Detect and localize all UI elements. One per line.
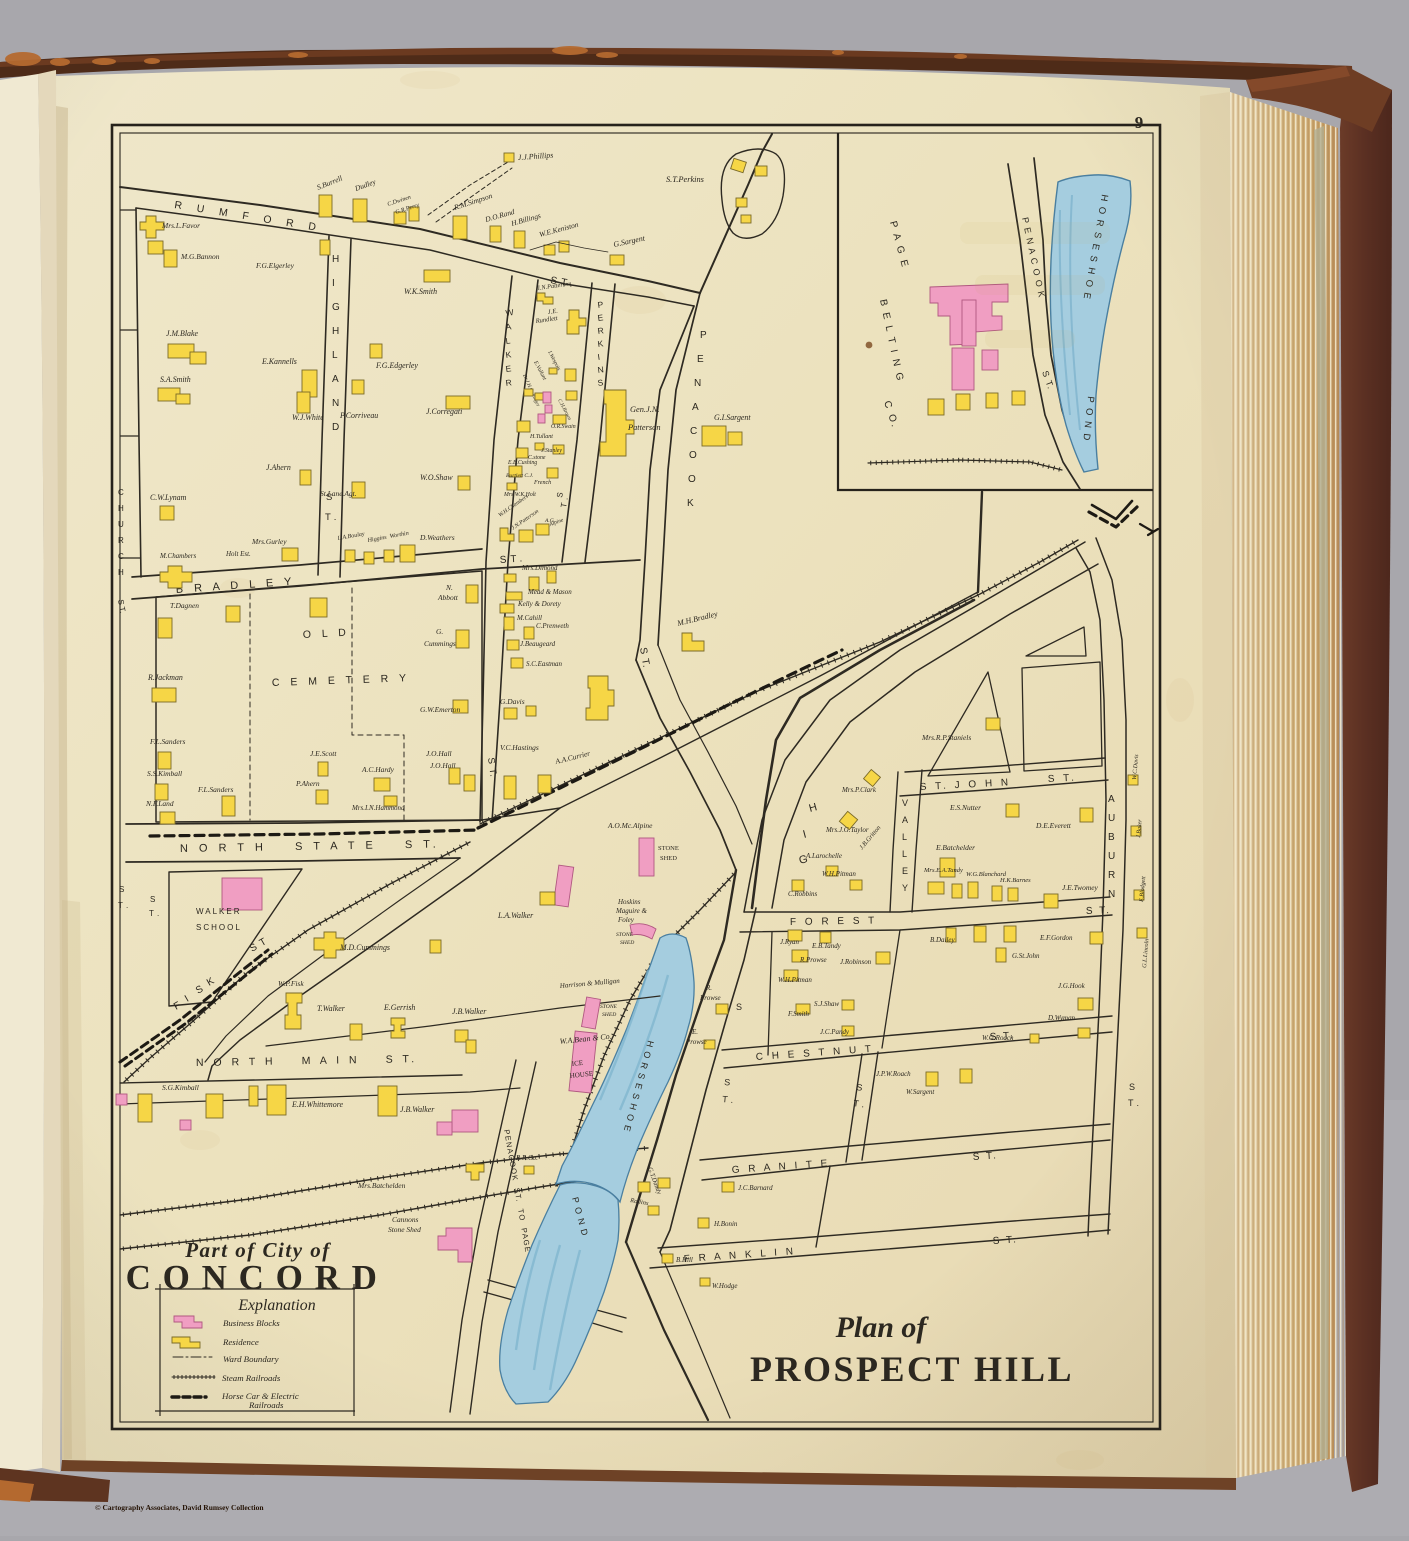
svg-text:H: H [118,504,128,513]
svg-text:M.G.Bannon: M.G.Bannon [180,252,220,261]
svg-text:W.G.Roach: W.G.Roach [982,1034,1014,1042]
svg-text:H: H [332,326,343,337]
svg-text:Y: Y [902,883,912,893]
svg-text:Explanation: Explanation [237,1297,315,1314]
svg-text:S.J.Shaw: S.J.Shaw [814,1000,840,1008]
svg-text:E.Gerrish: E.Gerrish [383,1003,415,1012]
svg-text:SCHOOL: SCHOOL [196,923,242,932]
svg-text:O L D: O L D [303,627,351,641]
svg-text:U: U [118,520,128,529]
svg-text:A: A [692,402,703,413]
svg-text:Mrs.I.N.Hammond: Mrs.I.N.Hammond [351,804,405,812]
svg-text:STONE: STONE [658,845,679,852]
svg-text:A.Larochelle: A.Larochelle [805,852,842,860]
svg-text:J.Stanley: J.Stanley [541,448,562,454]
svg-text:D.E.Everett: D.E.Everett [1035,821,1072,830]
svg-text:J.G.Hook: J.G.Hook [1058,982,1086,990]
svg-text:W.P.Fisk: W.P.Fisk [278,979,304,988]
svg-text:J.E.Scott: J.E.Scott [310,749,337,758]
svg-text:Mrs.P.Clark: Mrs.P.Clark [841,786,877,794]
svg-text:S T.: S T. [992,1234,1018,1247]
svg-text:G.I.Sargent: G.I.Sargent [714,413,751,422]
svg-text:C.W.Lynam: C.W.Lynam [150,493,187,502]
svg-text:N: N [694,378,705,389]
svg-text:A: A [505,321,516,332]
svg-text:F.G.Edgerley: F.G.Edgerley [375,361,418,370]
svg-text:Mrs.Gurley: Mrs.Gurley [251,537,287,546]
svg-text:E: E [902,866,912,876]
svg-text:A: A [332,374,343,385]
svg-text:E: E [597,312,608,323]
svg-text:P: P [700,330,711,341]
svg-text:J.O.Hall: J.O.Hall [426,749,452,758]
svg-text:W.Sargent: W.Sargent [906,1088,935,1096]
svg-text:G: G [332,302,344,313]
svg-text:E.S.Nutter: E.S.Nutter [949,803,981,812]
svg-text:STONE: STONE [600,1004,618,1010]
svg-text:E.Kannells: E.Kannells [261,357,297,366]
svg-text:L: L [332,350,342,361]
svg-text:J.B.Walker: J.B.Walker [452,1007,487,1016]
svg-text:Gen.J.N.: Gen.J.N. [630,405,659,414]
svg-text:Mrs.Batchelden: Mrs.Batchelden [357,1181,406,1190]
svg-text:E.: E. [691,1028,698,1036]
svg-text:N.: N. [445,583,453,592]
svg-text:A.C.Hardy: A.C.Hardy [361,765,395,774]
svg-text:R.: R. [705,984,712,992]
svg-text:N: N [332,398,343,409]
svg-text:Stone Shed: Stone Shed [388,1225,421,1234]
svg-text:Patterson: Patterson [627,423,661,432]
svg-text:T.: T. [118,901,132,910]
svg-text:C: C [690,426,701,437]
svg-text:S.S.Kimball: S.S.Kimball [147,769,182,778]
svg-text:Mrs.W.K.Holt: Mrs.W.K.Holt [503,492,536,498]
svg-text:K: K [687,498,698,509]
svg-text:French: French [533,480,551,486]
svg-text:M.D.Cummings: M.D.Cummings [339,943,390,952]
svg-text:H.K.Barnes: H.K.Barnes [999,877,1031,884]
svg-text:J.Corregati: J.Corregati [426,407,462,416]
svg-text:C O N C O R D: C O N C O R D [126,1258,379,1297]
svg-text:Prowse: Prowse [685,1038,707,1046]
svg-text:Abbott: Abbott [437,593,459,602]
svg-text:C.Robbins: C.Robbins [788,890,818,898]
svg-text:P: P [597,299,608,310]
svg-text:W.Hodge: W.Hodge [712,1282,738,1290]
svg-text:F.G.Elgerley: F.G.Elgerley [255,261,295,270]
svg-text:Residence: Residence [222,1337,259,1347]
svg-text:S.G.Kimball: S.G.Kimball [162,1083,199,1092]
svg-text:W.H.Pitman: W.H.Pitman [778,976,812,984]
svg-text:HILL: HILL [974,1349,1074,1389]
svg-text:C.Prenweth: C.Prenweth [536,622,569,630]
svg-text:S: S [150,895,159,904]
svg-text:R: R [118,536,128,545]
svg-text:E.F.Gordon: E.F.Gordon [1039,934,1073,942]
svg-text:E: E [505,363,516,374]
svg-text:L.A.Walker: L.A.Walker [497,911,534,920]
svg-text:J.Beaugeard: J.Beaugeard [520,640,556,648]
svg-text:L: L [505,335,515,346]
svg-text:V: V [902,798,912,808]
svg-text:W: W [505,306,518,318]
svg-text:T.: T. [722,1094,738,1105]
svg-text:J.Robinson: J.Robinson [840,958,872,966]
svg-text:V.C.Hastings: V.C.Hastings [500,743,539,752]
svg-text:B.Dailey: B.Dailey [930,936,955,944]
svg-text:S.A.Smith: S.A.Smith [160,375,191,384]
svg-text:Railroads: Railroads [248,1400,284,1410]
svg-text:O.R.Swain: O.R.Swain [551,424,576,430]
svg-text:J.Ahern: J.Ahern [266,463,291,472]
svg-text:S T.: S T. [972,1150,998,1163]
svg-text:Mrs.J.G.Taylor: Mrs.J.G.Taylor [825,826,869,834]
svg-text:N: N [1108,889,1119,900]
svg-text:T.: T. [325,512,340,523]
svg-text:Mrs.R.P.Staniels: Mrs.R.P.Staniels [921,733,971,742]
svg-text:W.H.Pitman: W.H.Pitman [822,870,856,878]
svg-text:T.: T. [853,1098,869,1110]
svg-text:N: N [597,364,608,375]
svg-text:T.Walker: T.Walker [317,1004,346,1013]
svg-text:N.F.Land: N.F.Land [145,799,174,808]
svg-text:Steam Railroads: Steam Railroads [222,1373,281,1383]
svg-text:F.Smith: F.Smith [787,1010,809,1018]
svg-text:H.Tullant: H.Tullant [529,434,553,440]
svg-text:S.T.Perkins: S.T.Perkins [666,175,704,184]
svg-text:R: R [597,325,608,336]
svg-text:K: K [597,338,608,349]
svg-text:K: K [505,349,516,360]
svg-text:Mrs.Dimond: Mrs.Dimond [521,564,558,572]
svg-text:U: U [1108,813,1119,824]
svg-text:WALKER: WALKER [196,907,242,916]
svg-text:E.Batchelder: E.Batchelder [935,843,975,852]
svg-text:S: S [736,1002,746,1012]
svg-text:G.: G. [436,627,443,636]
svg-text:H.Bonin: H.Bonin [713,1220,738,1228]
svg-text:H: H [332,254,343,265]
svg-text:J.E.Twomey: J.E.Twomey [1062,883,1098,892]
svg-text:Plan of: Plan of [835,1311,930,1344]
svg-text:T.: T. [1128,1098,1143,1108]
svg-text:M.Cahill: M.Cahill [516,614,542,622]
svg-text:J.P.W.Roach: J.P.W.Roach [876,1070,911,1078]
svg-text:F.L.Sanders: F.L.Sanders [149,737,186,746]
svg-text:D.Wyman: D.Wyman [1047,1014,1076,1022]
svg-text:B.Hill: B.Hill [676,1256,693,1264]
svg-text:R: R [1108,870,1119,881]
svg-text:W.K.Smith: W.K.Smith [404,287,437,296]
svg-text:A: A [1108,794,1119,805]
svg-text:E.B.Tandy: E.B.Tandy [811,942,842,950]
svg-text:J.M.Blake: J.M.Blake [166,329,198,338]
svg-text:R.Prowse: R.Prowse [799,956,827,964]
svg-text:Ward Boundary: Ward Boundary [223,1354,279,1364]
svg-text:Mrs.L.Favor: Mrs.L.Favor [161,221,200,230]
svg-text:S T.: S T. [1086,905,1111,917]
svg-text:L: L [902,849,911,859]
svg-text:T.Dagnen: T.Dagnen [170,601,199,610]
svg-text:F.L.Sanders: F.L.Sanders [197,785,234,794]
svg-text:U: U [1108,851,1119,862]
svg-text:R.R.Co.: R.R.Co. [515,1154,538,1162]
svg-text:S: S [597,377,608,388]
svg-text:P.Corriveau: P.Corriveau [339,411,378,420]
svg-text:Burtlett C.J.: Burtlett C.J. [506,473,533,479]
svg-text:P.Ahern: P.Ahern [295,779,320,788]
svg-text:Kelly & Dorety: Kelly & Dorety [517,600,562,608]
svg-text:C: C [118,552,128,561]
svg-text:9: 9 [1135,113,1144,132]
svg-text:J.Ryan: J.Ryan [780,938,800,946]
svg-text:SHED: SHED [660,855,677,862]
svg-text:S: S [1129,1082,1139,1092]
svg-text:S.C.Eastman: S.C.Eastman [526,660,563,668]
svg-text:G.St.John: G.St.John [1012,952,1040,960]
svg-text:S: S [119,885,128,894]
svg-text:E: E [697,354,708,365]
svg-text:T.: T. [149,909,163,918]
svg-text:Mead & Mason: Mead & Mason [527,588,572,596]
svg-text:W.O.Shaw: W.O.Shaw [420,473,453,482]
svg-text:D.Weathers: D.Weathers [419,533,455,542]
svg-text:R: R [505,377,516,388]
svg-text:O: O [688,474,700,485]
svg-text:M.Chambers: M.Chambers [159,552,196,560]
svg-text:W.J.White: W.J.White [292,413,324,422]
svg-text:A: A [902,815,912,825]
svg-text:D: D [332,422,343,433]
svg-text:© Cartography Associates, Davi: © Cartography Associates, David Rumsey C… [95,1503,264,1512]
svg-text:ICE: ICE [571,1059,583,1068]
svg-text:Cannons: Cannons [392,1215,419,1224]
svg-text:Holt Est.: Holt Est. [225,550,251,558]
svg-text:SHED: SHED [620,940,634,946]
svg-text:F O R E S T: F O R E S T [790,915,877,928]
svg-text:Mrs.E.A.Tandy: Mrs.E.A.Tandy [923,867,963,874]
svg-text:G.Davis: G.Davis [500,697,525,706]
svg-text:E.H.Whittemore: E.H.Whittemore [291,1100,343,1109]
svg-text:H: H [118,568,128,577]
svg-text:B: B [1108,832,1119,843]
svg-text:J.B.Walker: J.B.Walker [400,1105,435,1114]
svg-text:J.C.Pandy: J.C.Pandy [820,1028,850,1036]
svg-text:L: L [902,832,911,842]
svg-text:S T.: S T. [1048,772,1078,785]
svg-text:SHED: SHED [602,1012,616,1018]
svg-text:J.C.Barnard: J.C.Barnard [738,1184,773,1192]
svg-text:I: I [332,278,339,289]
svg-text:O: O [689,450,701,461]
svg-text:E.B.Cushing: E.B.Cushing [507,460,537,466]
svg-text:G.W.Emerton: G.W.Emerton [420,705,460,714]
svg-text:Prowse: Prowse [699,994,721,1002]
svg-text:S: S [856,1082,867,1093]
svg-text:Cummings: Cummings [424,639,456,648]
svg-text:PROSPECT: PROSPECT [750,1349,962,1389]
svg-text:Business Blocks: Business Blocks [223,1318,280,1328]
svg-text:R.Jackman: R.Jackman [147,673,183,682]
svg-text:STONE: STONE [616,932,634,938]
svg-text:Maguire &: Maguire & [615,907,647,915]
svg-text:A.O.Mc.Alpine: A.O.Mc.Alpine [607,821,653,830]
svg-text:Foley: Foley [617,916,635,924]
svg-text:C: C [118,488,128,497]
svg-text:St.Lane.Agt.: St.Lane.Agt. [320,489,357,498]
svg-text:S: S [724,1077,735,1088]
svg-text:Hoskins: Hoskins [617,898,641,906]
